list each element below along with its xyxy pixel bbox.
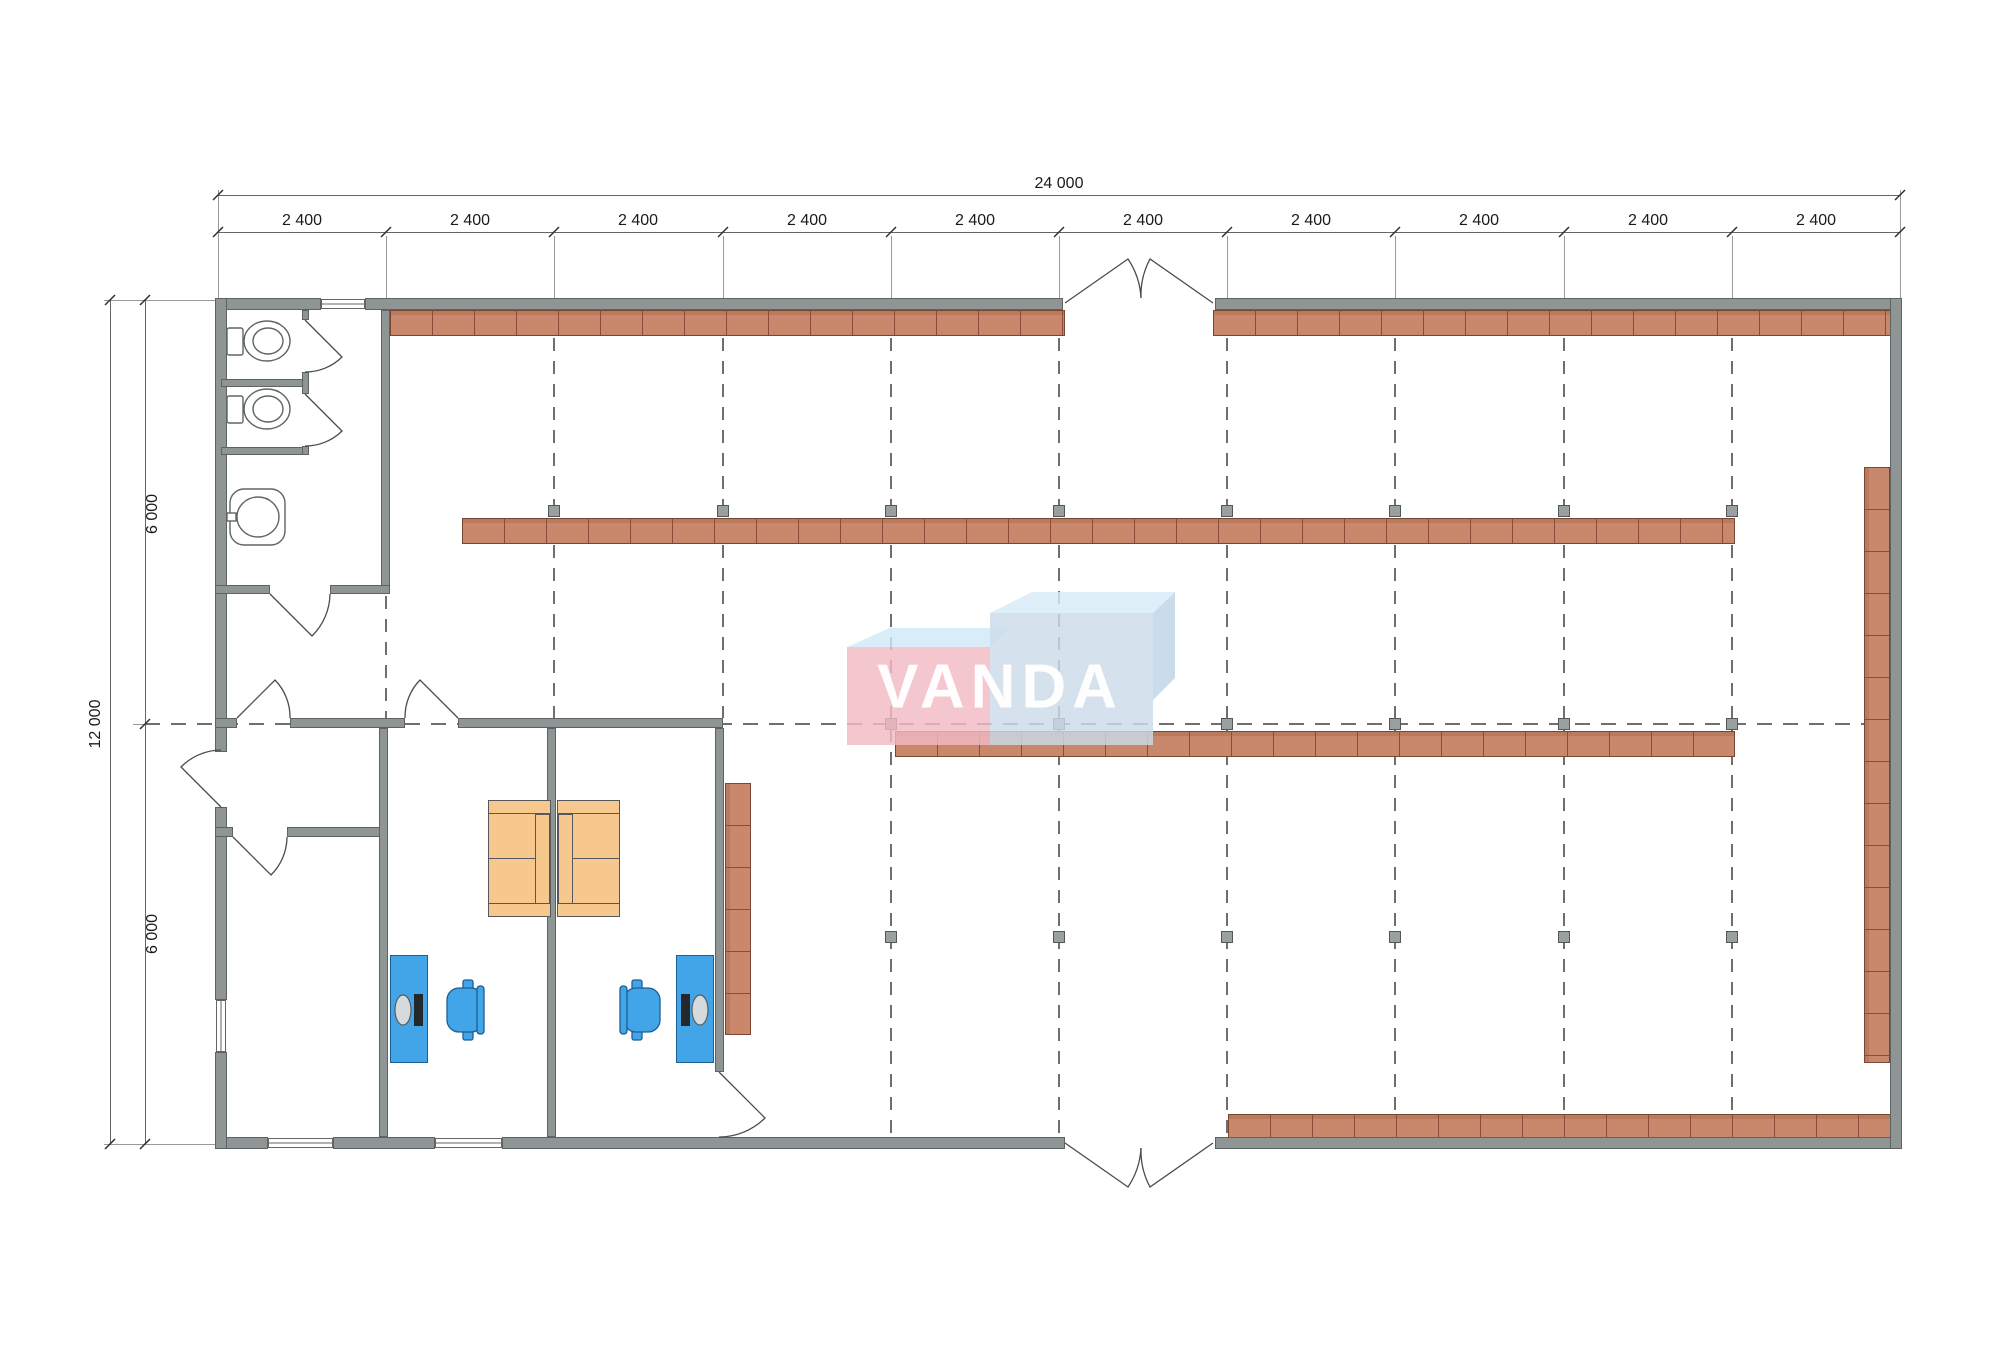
floor-plan-canvas: 24 000 2 400 2 400 2 400 2 400 2 400 2 4… [0, 0, 2000, 1358]
logo-box-pink-top [847, 628, 1010, 647]
vanda-logo-text: VANDA [877, 652, 1123, 723]
logo-box-blue-top [990, 592, 1175, 613]
